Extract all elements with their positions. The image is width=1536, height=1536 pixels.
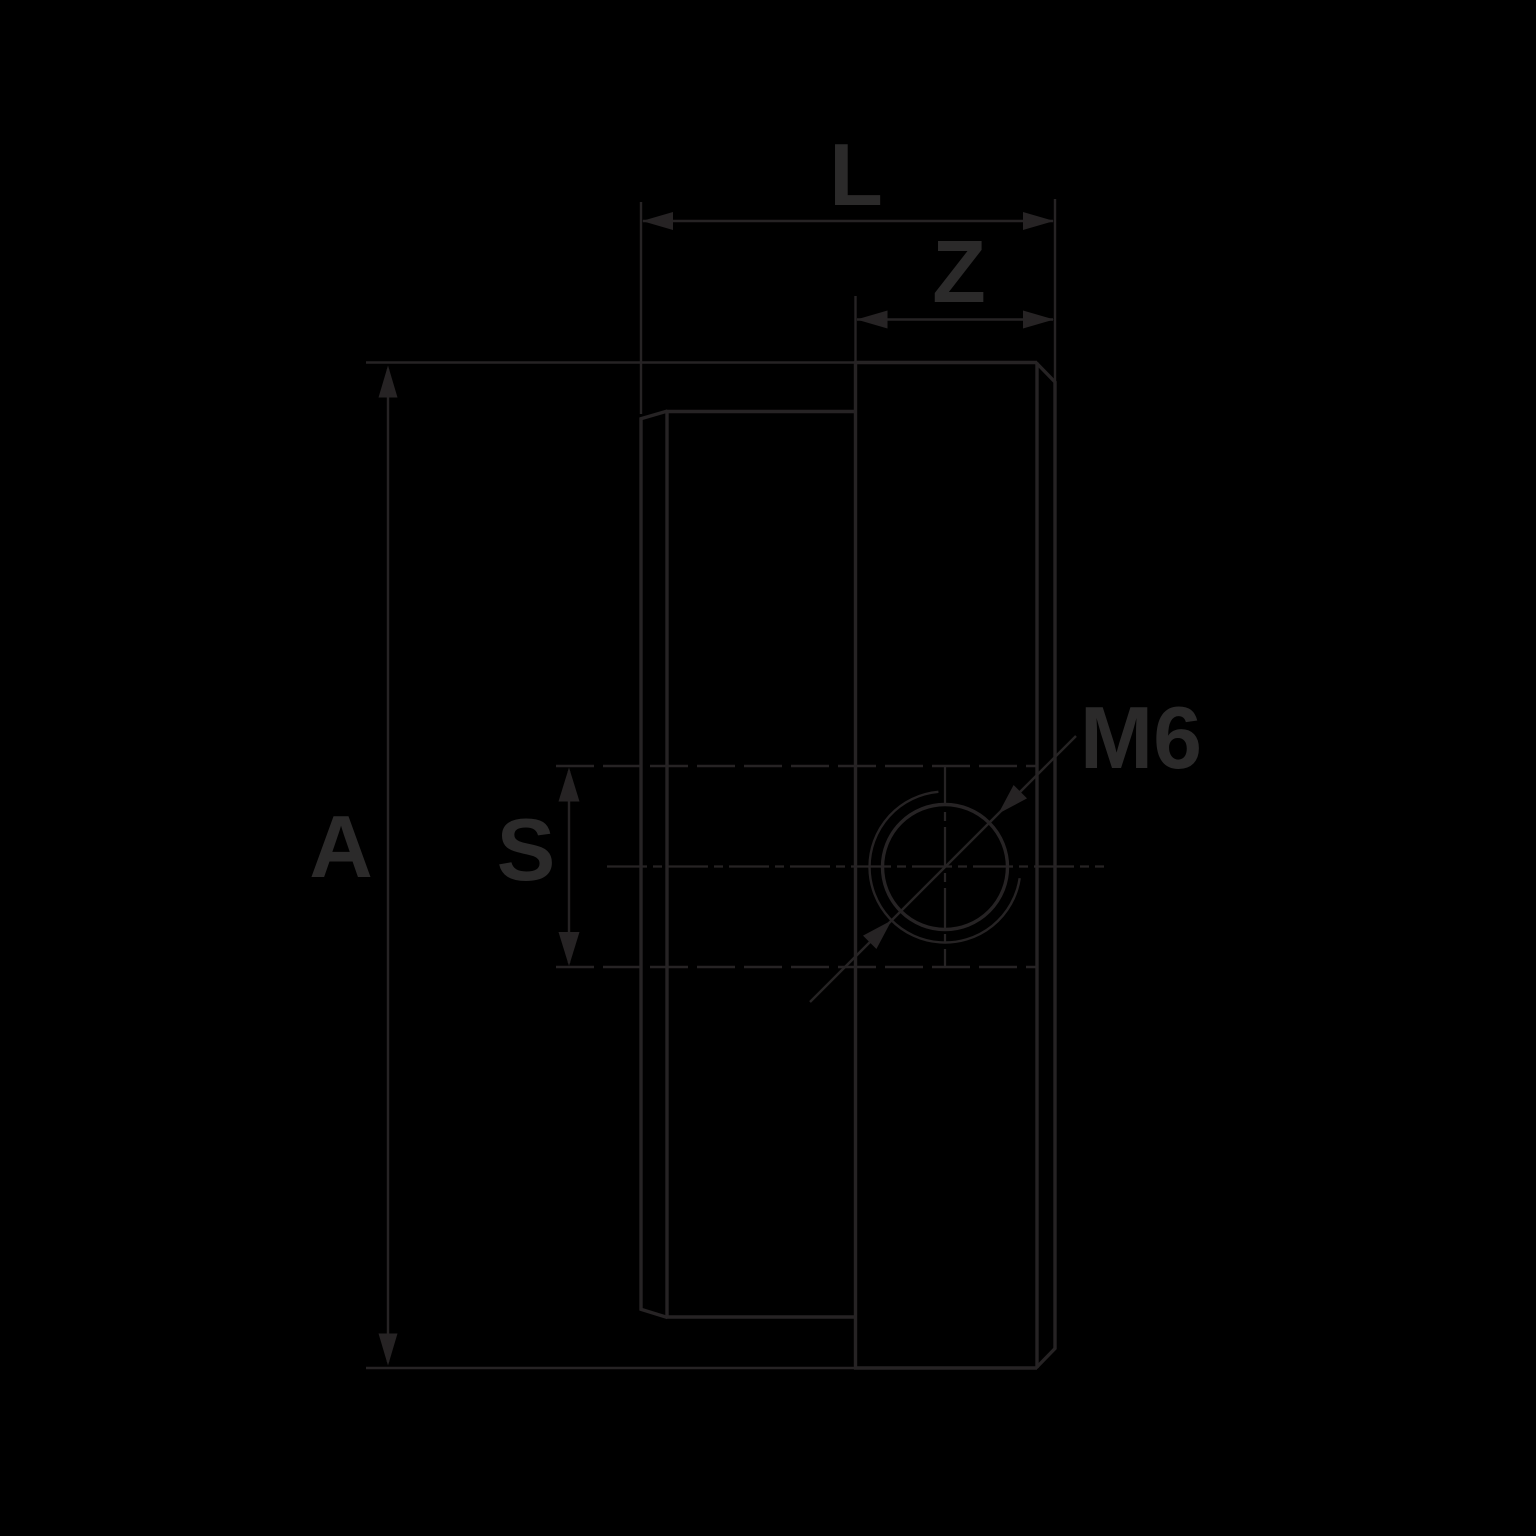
thread-size-label: M6 [1080,688,1202,787]
dim-A-arrow-top [379,366,398,398]
dimension-A: A [309,363,856,1369]
dim-Z-arrow-right [1023,311,1054,329]
dim-L-arrow-right [1023,212,1054,230]
technical-drawing-canvas: L Z A S M6 [0,0,1536,1536]
dim-Z-label: Z [932,222,986,321]
dim-L-label: L [829,125,883,224]
dimension-L: L [641,125,1055,414]
dim-Z-arrow-left [857,311,888,329]
dim-A-arrow-bottom [379,1334,398,1366]
dimension-S: S [497,768,580,967]
dim-S-arrow-top [559,768,580,802]
thread-callout: M6 [810,688,1202,1002]
dim-S-arrow-bottom [559,932,580,966]
flange-top-chamfer [640,411,668,419]
body-bottom-right-chamfer [1036,1348,1056,1368]
dimension-Z: Z [856,222,1055,363]
dim-S-label: S [497,800,556,899]
dim-L-arrow-left [642,212,673,230]
flange-bottom-chamfer [640,1309,668,1318]
body-top-right-chamfer [1036,363,1056,383]
part-outline [640,361,1056,1370]
dim-A-label: A [309,797,373,896]
